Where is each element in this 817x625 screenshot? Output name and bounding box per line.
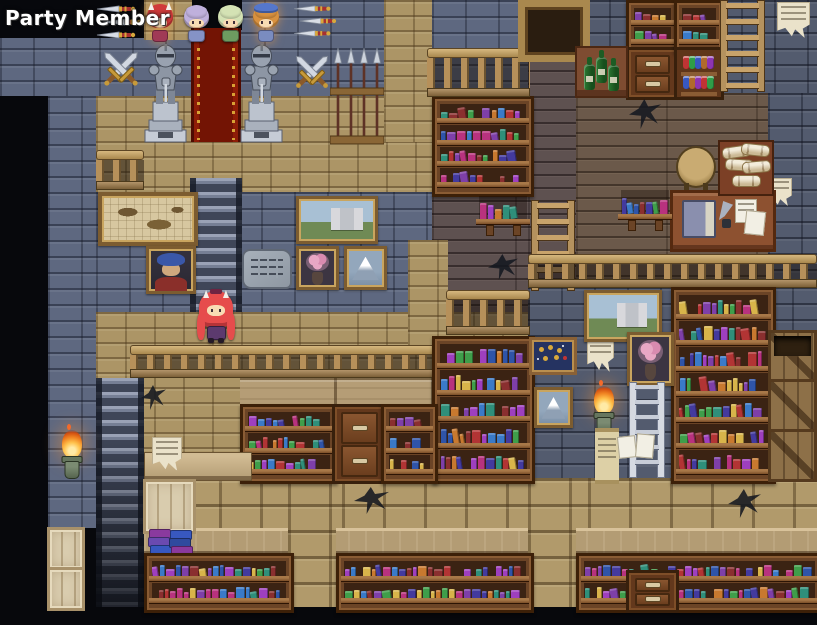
- wall-region-tanblock: [288, 478, 336, 607]
- book-stack: [147, 526, 191, 554]
- stool: [676, 146, 716, 188]
- crate-stack: [47, 527, 85, 607]
- portrait-painting: [146, 246, 196, 294]
- crossed-swords: [289, 50, 335, 94]
- bookshelf: [240, 404, 338, 484]
- red-carpet: [191, 28, 241, 142]
- tall-bookshelf: [671, 287, 776, 484]
- crossed-swords: [97, 46, 145, 92]
- bookshelf: [576, 553, 817, 613]
- drawer-cabinet: [626, 47, 679, 100]
- tall-bookshelf: [432, 336, 535, 484]
- drawer-cabinet: [332, 404, 387, 484]
- wooden-ladder: [719, 0, 766, 92]
- notice-scroll: [595, 428, 619, 484]
- stone-tablet: [242, 249, 292, 289]
- party-member-label: Party Member: [5, 6, 170, 30]
- mountain-painting: [534, 387, 573, 428]
- drawer-cabinet: [626, 570, 679, 613]
- crate-stack: [768, 330, 817, 478]
- wall-torch: [54, 430, 90, 482]
- player-character: [197, 290, 235, 344]
- balcony-railing: [130, 345, 450, 378]
- bookshelf: [144, 553, 294, 613]
- wall-region-tanblock: [96, 478, 817, 528]
- staircase-lower: [96, 378, 144, 607]
- bookshelf: [336, 553, 534, 613]
- writing-desk: [670, 190, 776, 252]
- bookshelf: [674, 0, 724, 54]
- wall-shelf: [478, 196, 528, 236]
- wall-map: [98, 192, 198, 246]
- castle-painting: [296, 196, 378, 244]
- balcony-railing: [528, 254, 817, 288]
- display-case: [529, 337, 577, 375]
- wall-shelf: [620, 190, 670, 232]
- bookshelf: [381, 404, 438, 484]
- party-member-3: [217, 3, 244, 42]
- spear-rack: [330, 46, 384, 146]
- bookshelf: [626, 0, 679, 54]
- game-map[interactable]: [0, 0, 817, 625]
- game-screen: Party Member: [0, 0, 817, 625]
- armor-statue: [141, 40, 190, 144]
- wall-region-tan: [384, 0, 432, 142]
- scroll-pile: [718, 140, 774, 196]
- party-member-2: [183, 3, 210, 42]
- flower-painting: [296, 246, 339, 290]
- wall-region-tanblock: [528, 478, 576, 607]
- mountain-painting: [344, 246, 387, 290]
- metal-ladder: [628, 382, 666, 478]
- mezzanine-railing: [96, 150, 144, 190]
- bookshelf: [432, 96, 534, 197]
- balustrade: [427, 48, 530, 97]
- party-member-4: [252, 3, 280, 42]
- wall-region-counter: [144, 528, 817, 554]
- wall-region-black: [0, 96, 48, 625]
- armor-statue: [237, 40, 286, 144]
- pinned-papers: [618, 434, 654, 462]
- flower-painting: [627, 332, 674, 386]
- throwing-knives: [292, 3, 340, 41]
- balustrade: [446, 290, 530, 335]
- potion-shelf: [674, 47, 724, 100]
- wine-table: [575, 46, 628, 98]
